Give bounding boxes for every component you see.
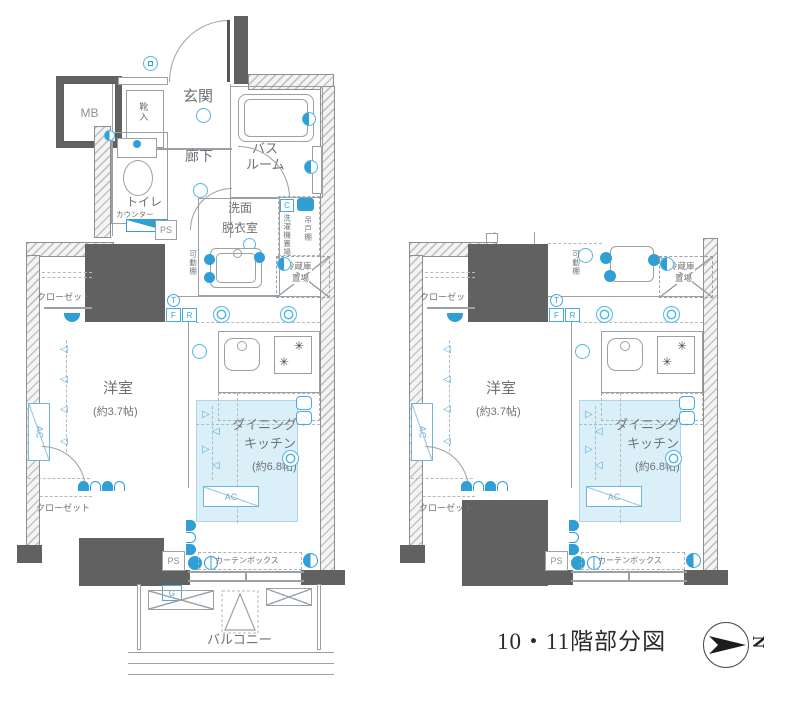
f-label-r: F [554,311,559,320]
t-outlet-r: T [550,294,563,307]
spotlight-icon [443,375,451,385]
sink-faucet-icon [620,341,630,351]
curtain-box-label-r: カーテンボックス [598,556,662,565]
dining-light-icon [665,450,682,467]
t-label-r: T [554,296,559,305]
ps-bottom-label-r: PS [550,556,562,566]
ac-wall-label-r: AC [417,426,427,439]
washbasin-tap-icon [604,270,616,282]
washbasin-tap-icon [600,252,612,264]
kitchen-light-small-icon [575,344,590,359]
vent-strip-icon [461,481,508,491]
spotlight-icon [443,405,451,415]
closet-bottom-dash2-r [423,496,475,497]
closet-hanger-rod-r [427,307,475,309]
block-core-r [468,244,548,322]
compass-north-label: N [748,636,768,648]
closet-top-label-r: クローゼット [420,292,474,302]
plan-partial: 可動棚 冷蔵庫 置場 T F R クローゼット 洋室 (約3.7帖) [0,0,800,710]
vent-bump-icon [473,481,484,491]
floor-plan-page: MB 玄関 靴入 廊下 バス ルーム [0,0,800,710]
stool-icon [679,396,695,410]
burner-icon [677,340,687,352]
plan-caption: 10・11階部分図 [497,622,666,656]
closet-top-dash2-r [425,277,475,278]
spotlight-icon [585,445,593,455]
kadodana-label-r: 可動棚 [571,250,580,276]
spotlight-icon [585,410,593,420]
yoshitsu-label-r: 洋室 [486,380,516,397]
r-box-r: R [565,308,580,322]
vent-bump-icon [569,544,579,555]
spotlight-icon [443,437,451,447]
kitchen-light-icon [663,306,680,323]
yoshitsu-size-label-r: (約3.7帖) [476,406,521,419]
spotlight-icon [595,461,603,471]
spotlight-icon [595,427,603,437]
window-vent-icon [686,553,701,568]
spotlight-icon [443,345,451,355]
burner-icon [662,356,672,368]
vent-bump-icon [497,481,508,491]
closet-top-dash-r [425,272,475,273]
stool-icon [679,411,695,425]
vent-strip-icon [569,520,579,555]
pipe-space-bottom-r: PS [545,551,568,571]
cut-stub [534,232,535,244]
vent-bump-icon [569,532,579,543]
window-tick-r [628,571,630,582]
fridge-label-2-r: 置場 [675,274,692,284]
wall-left-cap-r [400,545,425,563]
closet-bottom-label-r: クローゼット [419,503,473,513]
compass-arrow-icon [703,622,749,668]
dash-dk-top-r [579,322,703,323]
washbasin-r [610,246,654,282]
vent-bump-icon [485,481,496,491]
compass: N [700,618,780,674]
fridge-outlet-icon [660,257,674,271]
kitchen-light-icon [596,306,613,323]
f-box-r: F [549,308,564,322]
closet-bottom-dash-r [411,478,473,479]
cut-dash [548,243,602,244]
wall-bottom-strip-r [535,570,573,585]
vent-bump-icon [569,520,579,531]
r-label-r: R [570,311,576,320]
wall-yoshitsu-dk-r [571,322,572,488]
closet-bracket-icon [447,313,463,322]
vent-bump-icon [461,481,472,491]
ac-dk-label-r: AC [608,492,621,502]
wall-right-bottom-r [684,570,728,585]
ac-dk-unit-r: AC [586,486,642,507]
wall-dk-top-r [548,296,703,297]
